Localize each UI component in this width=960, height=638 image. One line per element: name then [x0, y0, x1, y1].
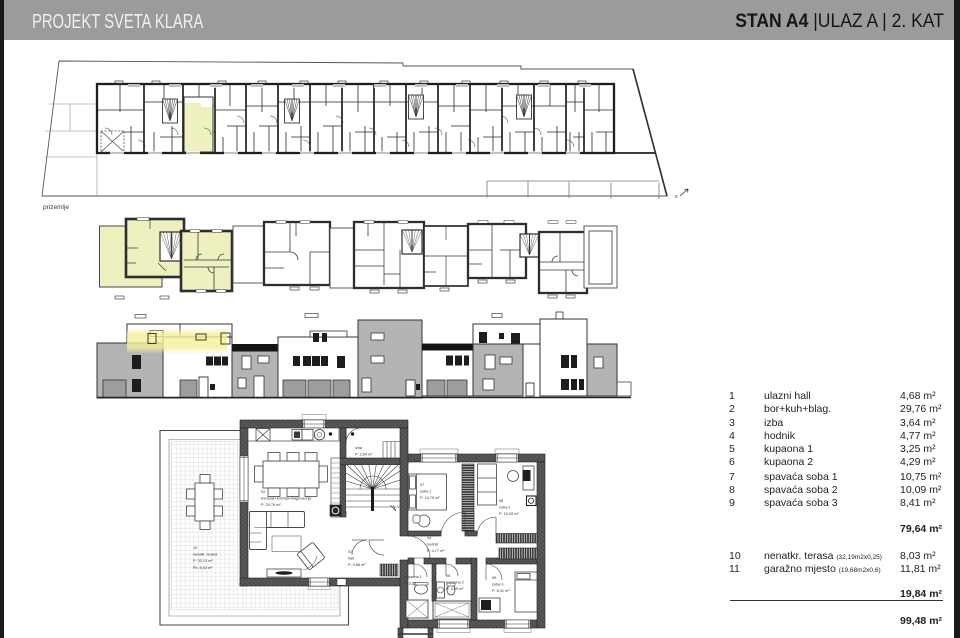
svg-text:P: 4,29 m²: P: 4,29 m² [446, 587, 464, 591]
svg-text:P: 32,13 m²: P: 32,13 m² [193, 559, 213, 563]
svg-text:boravak+kuhinja+blagovaonje: boravak+kuhinja+blagovaonje [261, 497, 311, 501]
svg-text:09: 09 [492, 576, 496, 580]
svg-text:P: 4,77 m²: P: 4,77 m² [427, 549, 445, 553]
svg-text:06: 06 [446, 574, 450, 578]
svg-text:02: 02 [261, 490, 265, 494]
svg-text:soba 3: soba 3 [492, 583, 503, 587]
svg-text:10: 10 [193, 546, 197, 550]
svg-text:hall: hall [348, 557, 354, 561]
svg-text:01: 01 [348, 550, 352, 554]
svg-text:hodnik: hodnik [427, 543, 438, 547]
svg-text:soba 2: soba 2 [499, 506, 510, 510]
svg-text:soba 1: soba 1 [420, 490, 431, 494]
svg-text:P: 3,64 m²: P: 3,64 m² [355, 453, 373, 457]
svg-text:nenatk. terasa: nenatk. terasa [193, 553, 218, 557]
svg-text:kupaona 1: kupaona 1 [404, 575, 422, 579]
svg-text:P: 8,41 m²: P: 8,41 m² [492, 589, 510, 593]
svg-text:P: 29,76 m²: P: 29,76 m² [261, 503, 281, 507]
svg-text:P: 3,25: P: 3,25 [404, 582, 416, 586]
svg-text:P: 4,68 m²: P: 4,68 m² [348, 563, 366, 567]
svg-text:08: 08 [499, 499, 503, 503]
svg-text:P: 10,75 m²: P: 10,75 m² [420, 496, 440, 500]
svg-text:izba: izba [355, 446, 363, 450]
svg-text:s: s [675, 194, 678, 200]
svg-text:P: 10,09 m²: P: 10,09 m² [499, 512, 519, 516]
svg-text:07: 07 [420, 483, 424, 487]
svg-text:kupaona 2: kupaona 2 [446, 581, 464, 585]
svg-text:prizemlje: prizemlje [43, 204, 69, 211]
svg-text:04: 04 [427, 536, 431, 540]
svg-text:Pk: 8,03 m²: Pk: 8,03 m² [193, 566, 213, 570]
